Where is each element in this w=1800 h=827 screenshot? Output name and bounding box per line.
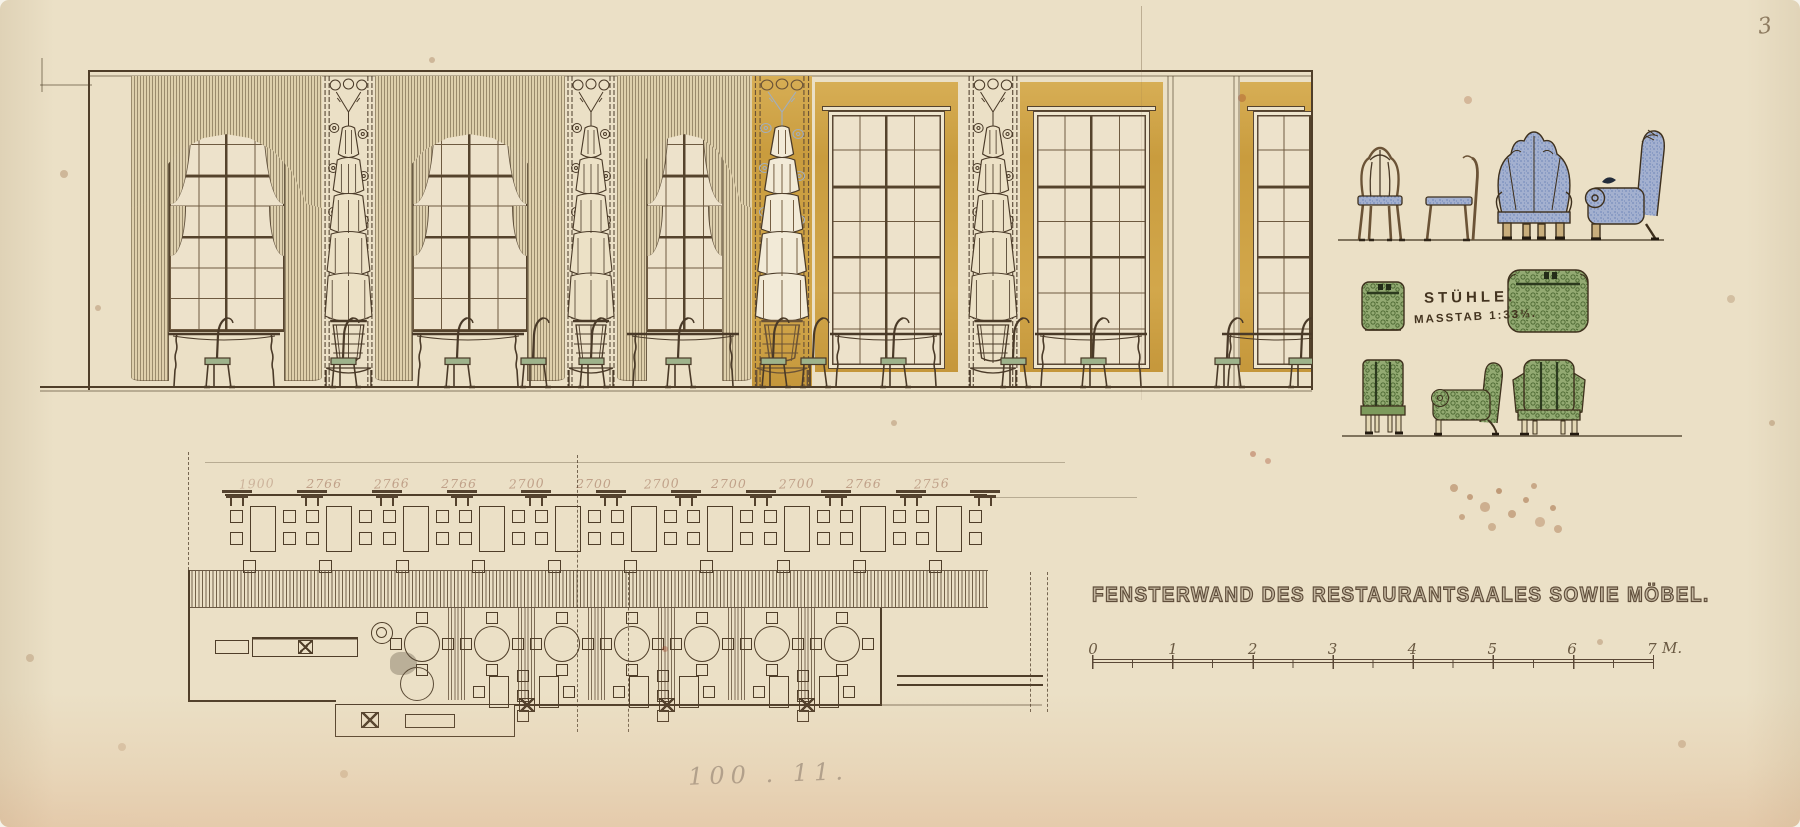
scale-unit-label: M. (1662, 639, 1682, 657)
dimension-value: 2766 (290, 476, 357, 491)
floor-plan: 1900276627662766270027002700270027002766… (185, 432, 1085, 750)
scale-bar-line (1092, 659, 1653, 663)
plan-left-edge-dashed (188, 452, 189, 570)
furniture-studies-graphic (1330, 112, 1692, 444)
elevation-floor-line-2 (40, 390, 1312, 392)
furniture-studies (1320, 100, 1800, 460)
plan-side-table (215, 640, 249, 654)
plan-right-bottom-line (880, 704, 1042, 706)
plan-curtain-band (188, 570, 988, 608)
plan-bench (252, 637, 358, 657)
elevation-chairs-tables-graphic (90, 316, 1312, 390)
drawing-title: FENSTERWAND DES RESTAURANTSAALES SOWIE M… (1092, 584, 1710, 609)
plan-plant-pot (371, 622, 393, 644)
margin-guide-h (40, 84, 92, 86)
plan-wall-post (659, 698, 675, 712)
plan-lower-table-group (757, 664, 853, 728)
window-lintel (822, 106, 951, 111)
window-lintel (1027, 106, 1156, 111)
paper-fold-line (1141, 6, 1142, 70)
plan-right-room-line-2 (897, 684, 1043, 686)
plan-guide-line (205, 462, 1065, 463)
stuhle-label: STÜHLE. (1424, 288, 1516, 307)
plan-annex-bottom-wall (188, 700, 336, 702)
plan-bottom-wall (515, 704, 880, 706)
plan-left-wall (188, 570, 190, 700)
plan-wall-post (519, 698, 535, 712)
paper-fold-line-faint (1141, 70, 1142, 400)
dimension-value: 2700 (560, 476, 627, 491)
plan-construction-dashed-2 (628, 572, 629, 732)
plan-lower-table-group (617, 664, 713, 728)
plan-right-room-line (897, 675, 1043, 677)
drawing-sheet: STÜHLE. MASSTAB 1:33⅓. 19002766276627662… (0, 0, 1800, 827)
window-lintel (1247, 106, 1305, 111)
cornice-line (88, 70, 1312, 72)
plan-guide-extension (987, 497, 1137, 498)
plan-right-dashed-edge-2 (1047, 572, 1048, 712)
margin-guide-v (41, 58, 43, 92)
elevation-floor-line (40, 386, 1312, 388)
plan-dimension-row: 1900276627662766270027002700270027002766… (223, 476, 965, 491)
dimension-value: 2766 (425, 476, 492, 491)
plan-room-divider (880, 608, 882, 706)
plan-right-dashed-edge (1030, 572, 1031, 712)
plan-stove-box (361, 712, 379, 728)
plan-round-table-sketch (400, 667, 434, 701)
pencil-note: 100 . 11. (688, 757, 850, 791)
plan-construction-dashed (577, 455, 578, 732)
foxing-stains (0, 0, 4, 4)
dimension-value: 2766 (830, 476, 897, 491)
dimension-value: 2700 (695, 476, 762, 491)
scale-bar: 01234567 M. (1092, 640, 1692, 674)
plan-wall-post (799, 698, 815, 712)
plan-counter (405, 714, 455, 728)
